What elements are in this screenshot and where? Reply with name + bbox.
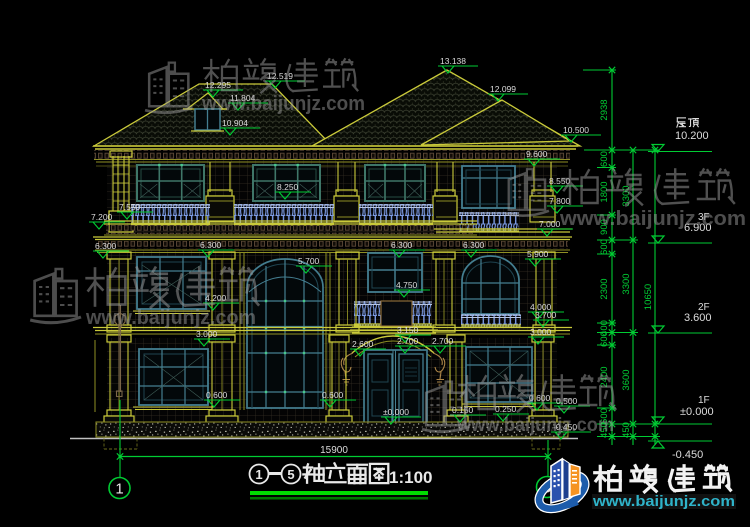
- svg-text:10.500: 10.500: [563, 125, 589, 135]
- svg-text:±0.000: ±0.000: [383, 407, 409, 417]
- svg-text:10.200: 10.200: [675, 130, 709, 142]
- svg-text:9.600: 9.600: [526, 149, 548, 159]
- svg-text:5.700: 5.700: [298, 256, 320, 266]
- svg-text:1:100: 1:100: [389, 468, 432, 487]
- svg-text:-0.450: -0.450: [672, 449, 703, 461]
- svg-text:12.099: 12.099: [490, 84, 516, 94]
- svg-text:15900: 15900: [320, 445, 348, 456]
- svg-text:0.250: 0.250: [495, 404, 517, 414]
- svg-text:6.300: 6.300: [95, 241, 117, 251]
- svg-text:2.700: 2.700: [397, 336, 419, 346]
- svg-text:3.700: 3.700: [535, 310, 557, 320]
- svg-text:0.150: 0.150: [452, 405, 474, 415]
- svg-text:6.300: 6.300: [463, 240, 485, 250]
- svg-text:600: 600: [599, 331, 610, 347]
- svg-text:www.baijunjz.com: www.baijunjz.com: [456, 415, 614, 436]
- svg-text:12.295: 12.295: [205, 80, 231, 90]
- svg-text:±0.000: ±0.000: [680, 406, 714, 418]
- svg-text:1F: 1F: [698, 395, 710, 406]
- svg-text:600: 600: [599, 151, 610, 167]
- svg-text:5: 5: [287, 467, 294, 482]
- svg-text:0.600: 0.600: [206, 390, 228, 400]
- svg-text:www.baijunjz.com: www.baijunjz.com: [592, 493, 735, 510]
- svg-text:7.550: 7.550: [119, 202, 141, 212]
- svg-text:10650: 10650: [643, 284, 654, 310]
- svg-text:www.baijunjz.com: www.baijunjz.com: [201, 93, 365, 115]
- svg-text:3.000: 3.000: [196, 329, 218, 339]
- svg-text:10.904: 10.904: [222, 118, 248, 128]
- svg-text:2938: 2938: [599, 99, 610, 120]
- svg-text:1800: 1800: [599, 181, 610, 202]
- svg-text:7.000: 7.000: [539, 219, 561, 229]
- svg-text:4.750: 4.750: [396, 280, 418, 290]
- svg-text:2300: 2300: [599, 278, 610, 299]
- svg-text:7.800: 7.800: [549, 196, 571, 206]
- svg-text:0.600: 0.600: [322, 390, 344, 400]
- svg-text:3.600: 3.600: [684, 312, 712, 324]
- svg-text:2.600: 2.600: [352, 339, 374, 349]
- svg-text:3600: 3600: [621, 369, 632, 390]
- svg-text:450: 450: [621, 422, 632, 438]
- svg-text:3300: 3300: [621, 273, 632, 294]
- svg-text:2.700: 2.700: [432, 336, 454, 346]
- svg-text:6.300: 6.300: [391, 240, 413, 250]
- svg-text:1: 1: [115, 481, 123, 498]
- svg-text:7.200: 7.200: [91, 212, 113, 222]
- svg-text:3.000: 3.000: [530, 327, 552, 337]
- svg-text:3.150: 3.150: [397, 325, 419, 335]
- svg-text:5.900: 5.900: [527, 249, 549, 259]
- svg-text:www.baijunjz.com: www.baijunjz.com: [85, 307, 256, 329]
- svg-text:www.baijunjz.com: www.baijunjz.com: [559, 208, 746, 230]
- svg-text:8.250: 8.250: [277, 182, 299, 192]
- svg-text:6.300: 6.300: [200, 240, 222, 250]
- svg-text:13.138: 13.138: [440, 56, 466, 66]
- svg-text:0.500: 0.500: [556, 396, 578, 406]
- svg-text:600: 600: [599, 239, 610, 255]
- svg-text:1: 1: [255, 467, 262, 482]
